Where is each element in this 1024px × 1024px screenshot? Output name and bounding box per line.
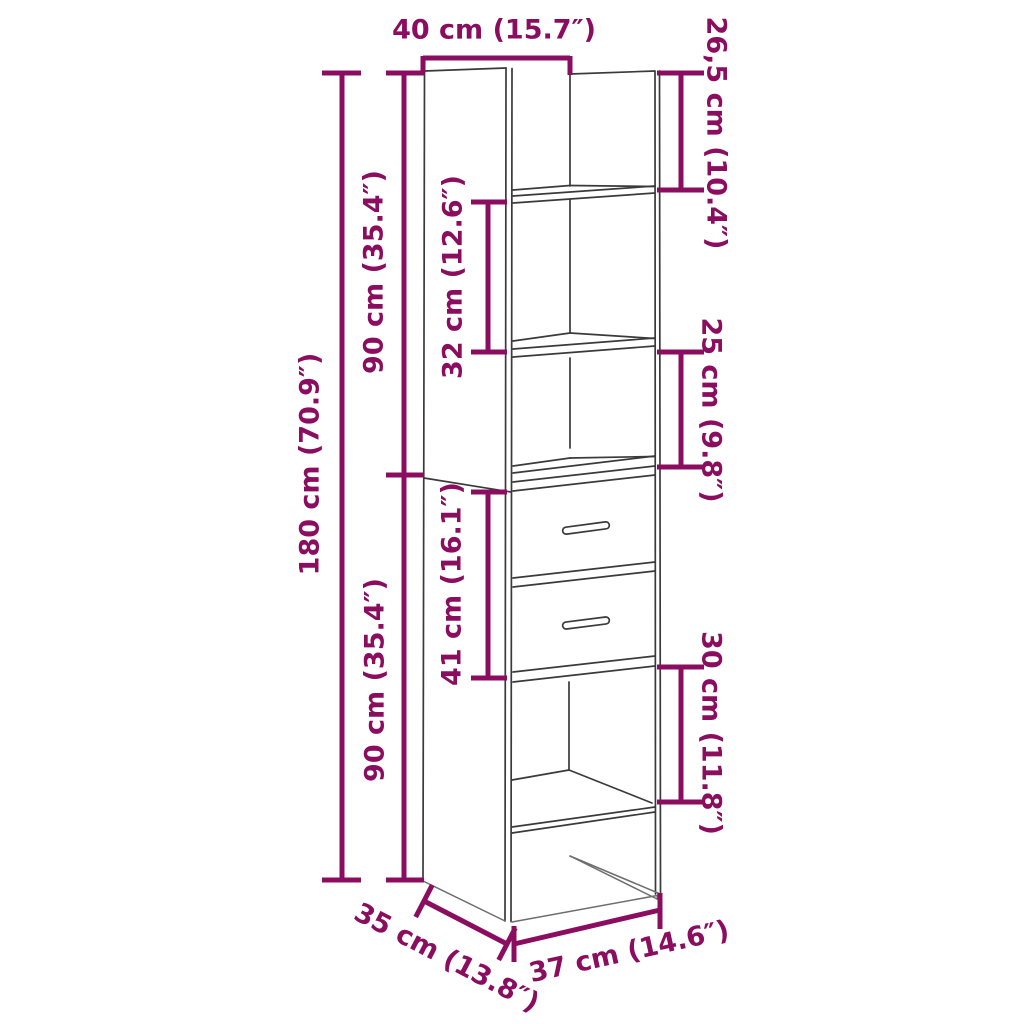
dim-label-top-width: 40 cm (15.7″) [392,14,596,45]
diagram-canvas: 40 cm (15.7″) 26,5 cm (10.4″) 180 cm (70… [0,0,1024,1024]
dim-label-total-height: 180 cm (70.9″) [294,353,325,576]
shelf-edge [570,186,655,187]
dim-label-top-compartment: 26,5 cm (10.4″) [701,17,732,250]
cabinet-edge [511,69,512,922]
cabinet-edge [660,71,661,895]
dim-label-upper-section: 90 cm (35.4″) [358,170,389,374]
cabinet-edge [655,72,656,895]
dim-label-shelf-gap: 32 cm (12.6″) [437,175,468,379]
dim-label-drawer-section: 41 cm (16.1″) [436,482,467,686]
dim-label-lower-section: 90 cm (35.4″) [359,578,390,782]
dim-label-bottom-compartment: 30 cm (11.8″) [696,631,727,835]
dimension-diagram: 40 cm (15.7″) 26,5 cm (10.4″) 180 cm (70… [0,0,1024,1024]
dim-label-third-compartment: 25 cm (9.8″) [696,317,727,502]
